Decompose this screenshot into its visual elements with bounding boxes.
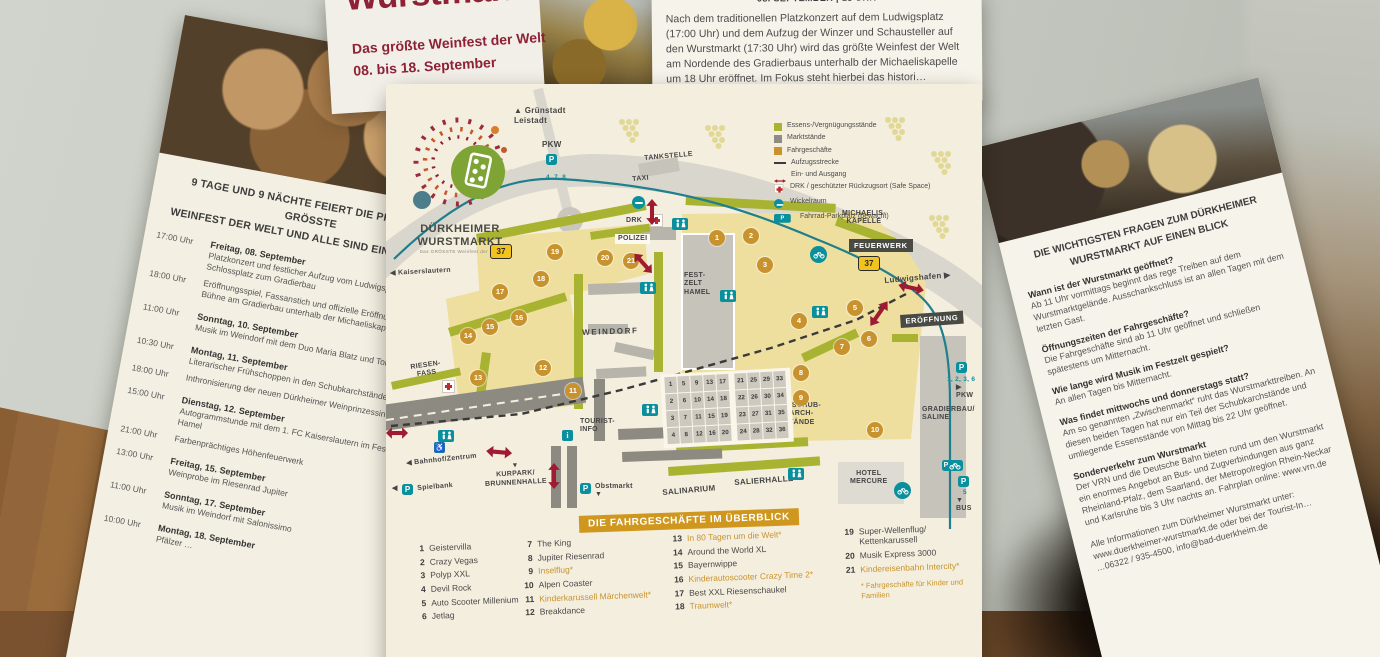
wc-icon — [720, 290, 736, 302]
rides-column: 7The King8Jupiter Riesenrad9Inselflug*10… — [516, 534, 652, 621]
ride-item: 12Breakdance — [519, 603, 652, 618]
ride-name: Around the World XL — [687, 544, 766, 557]
stall-number: 25 — [747, 372, 760, 389]
ride-item: 17Best XXL Riesenschaukel — [668, 583, 814, 599]
bus-route-label: 5 — [963, 489, 967, 497]
schedule-time: 17:00 Uhr — [151, 229, 202, 270]
stall-number: 33 — [773, 371, 786, 388]
ride-item: 1Geistervilla — [408, 540, 517, 554]
drk-label: DRK — [626, 217, 642, 225]
stand-marker-20: 20 — [597, 250, 613, 266]
pkw-ost-routes-label: 1, 2, 3, 6 — [947, 376, 975, 384]
ride-number: 8 — [516, 553, 532, 564]
ride-name: Kinderkarussell Märchenwelt* — [539, 589, 651, 603]
green-legend-icon — [774, 123, 782, 131]
stand-marker-13: 13 — [470, 370, 486, 386]
rides-column: 19Super-Wellenflug/ Kettenkarussell20Mus… — [838, 522, 972, 601]
schedule-time: 21:00 Uhr — [119, 423, 166, 442]
ride-name: Geistervilla — [429, 541, 471, 553]
ride-name: Polyp XXL — [430, 569, 470, 581]
legend-item: Wickelraum — [774, 198, 950, 210]
legend-label: Aufzugsstrecke — [791, 159, 839, 168]
ride-item: 3Polyp XXL — [409, 567, 518, 581]
ride-name: Jupiter Riesenrad — [537, 550, 604, 563]
legend-label: Ein- und Ausgang — [791, 171, 846, 180]
obstmarkt-label: Obstmarkt ▼ — [595, 483, 633, 500]
stall-number: 20 — [719, 425, 732, 442]
ride-number: 20 — [839, 550, 855, 561]
ride-name: Alpen Coaster — [538, 578, 592, 590]
stand-marker-12: 12 — [535, 360, 551, 376]
stand-marker-7: 7 — [834, 339, 850, 355]
ride-name: The King — [537, 537, 571, 548]
stall-number: 13 — [703, 375, 716, 392]
stall-number: 34 — [774, 388, 787, 405]
faq-list: Wann ist der Wurstmarkt geöffnet?Ab 11 U… — [1027, 228, 1339, 529]
ride-name: Musik Express 3000 — [860, 547, 937, 560]
legend-item: Aufzugsstrecke — [774, 159, 950, 168]
stall-number: 29 — [760, 372, 773, 389]
parking-icon: P — [958, 476, 969, 487]
stand-marker-19: 19 — [547, 244, 563, 260]
schedule-time: 13:00 Uhr — [113, 446, 162, 476]
stall-number: 24 — [737, 424, 750, 441]
bicycle-icon — [894, 482, 911, 499]
stall-number: 15 — [705, 409, 718, 426]
stall-number: 2 — [665, 394, 678, 411]
map-panel: DÜRKHEIMER WURSTMARKT Das GRÖSSTE Weinfe… — [386, 84, 982, 657]
ride-item: 18Traumwelt* — [668, 597, 814, 613]
brochure-dates: 08. bis 18. September — [353, 54, 497, 79]
ride-number: 3 — [409, 570, 425, 581]
entrance-arrow — [386, 426, 408, 444]
ride-number: 9 — [517, 566, 533, 577]
stall-number: 28 — [750, 423, 763, 440]
entrance-arrow — [543, 463, 561, 489]
ride-name: Devil Rock — [431, 582, 472, 594]
schedule-time: 15:00 Uhr — [123, 385, 174, 426]
stand-marker-15: 15 — [482, 319, 498, 335]
ride-number: 5 — [410, 598, 426, 609]
pbike-legend-icon: P — [774, 214, 791, 223]
stall-number: 11 — [692, 409, 705, 426]
entrance-arrow — [641, 199, 659, 225]
ride-item: 4Devil Rock — [410, 581, 519, 595]
legend-item: Fahrgeschäfte — [774, 147, 950, 156]
stall-number: 19 — [718, 408, 731, 425]
legend-label: DRK / geschützter Rückzugsort (Safe Spac… — [790, 183, 930, 192]
ride-number: 15 — [667, 561, 683, 572]
ride-number: 14 — [666, 547, 682, 558]
stall-number: 12 — [693, 426, 706, 443]
stall-number: 31 — [762, 406, 775, 423]
schedule-time: 10:30 Uhr — [134, 335, 183, 365]
michaeliskapelle-label: MICHAELIS- KAPELLE — [842, 210, 886, 227]
legend-label: Fahrgeschäfte — [787, 147, 832, 156]
spielbank-arrow-label: ◀ — [392, 485, 398, 493]
kurpark-label: ▼ KURPARK/ BRUNNENHALLE — [484, 461, 547, 489]
schedule-time: 18:00 Uhr — [146, 268, 195, 298]
stand-marker-16: 16 — [511, 310, 527, 326]
stand-marker-1: 1 — [709, 230, 725, 246]
stall-number: 10 — [691, 392, 704, 409]
brochure-subtitle: Das größte Weinfest der Welt — [351, 29, 546, 57]
schubkarch-stall-grid: 1591317212529332610141822263034371115192… — [660, 368, 794, 449]
rides-list: 1Geistervilla2Crazy Vegas3Polyp XXL4Devi… — [400, 522, 977, 657]
ride-number: 21 — [839, 564, 855, 575]
gruenstadt-label: ▲ Grünstadt Leistadt — [514, 106, 566, 125]
opening-date-header: 08. SEPTEMBER | 18 UHR — [666, 0, 968, 4]
schedule-time: 10:00 Uhr — [101, 513, 150, 543]
legend-item: Ein- und Ausgang — [774, 171, 950, 180]
wc-icon — [812, 306, 828, 318]
taxi-label: TAXI — [632, 175, 649, 185]
stand-marker-18: 18 — [533, 271, 549, 287]
tourist-info-label: TOURIST- INFO — [580, 418, 615, 435]
ride-name: Auto Scooter Millenium — [431, 594, 519, 608]
stall-number: 6 — [678, 393, 691, 410]
legend-label: Essens-/Vergnügungsstände — [787, 122, 877, 131]
ride-item: 9Inselflug* — [517, 562, 650, 577]
stall-number: 21 — [734, 373, 747, 390]
ride-name: Kindereisenbahn Intercity* — [860, 560, 960, 574]
legend-item: Essens-/Vergnügungsstände — [774, 122, 950, 131]
ride-name: Crazy Vegas — [430, 555, 479, 567]
wc-icon — [642, 404, 658, 416]
stand-marker-6: 6 — [861, 331, 877, 347]
ride-item: 11Kinderkarussell Märchenwelt* — [518, 589, 651, 604]
ride-item: 7The King — [516, 534, 649, 549]
ride-item: 8Jupiter Riesenrad — [516, 548, 649, 563]
ride-number: 7 — [516, 539, 532, 550]
stall-number: 23 — [736, 407, 749, 424]
stall-number: 7 — [679, 410, 692, 427]
parking-icon: P — [956, 362, 967, 373]
ride-item: 13In 80 Tagen um die Welt* — [666, 528, 812, 544]
ride-name: Super-Wellenflug/ Kettenkarussell — [859, 524, 927, 547]
schedule-time: 18:00 Uhr — [131, 362, 178, 381]
ride-number: 6 — [411, 611, 427, 622]
arrow-legend-icon — [774, 172, 786, 180]
ride-number: 16 — [667, 574, 683, 585]
ride-name: Best XXL Riesenschaukel — [689, 584, 787, 598]
route-37-badge: 37 — [858, 256, 880, 271]
wc-icon — [438, 430, 454, 442]
stall-number: 5 — [677, 376, 690, 393]
feuerwerk-label: FEUERWERK — [849, 239, 913, 252]
pkw-ost-label: ▶ PKW — [956, 384, 973, 401]
route-37-badge: 37 — [490, 244, 512, 259]
stand-marker-14: 14 — [460, 328, 476, 344]
ride-number: 2 — [409, 557, 425, 568]
wurstmarkt-logo-art — [400, 110, 520, 218]
legend-item: Marktstände — [774, 134, 950, 143]
stand-marker-17: 17 — [492, 284, 508, 300]
ride-name: Jetlag — [432, 610, 455, 621]
ride-item: 16Kinderautoscooter Crazy Time 2* — [667, 569, 813, 585]
rides-column: 1Geistervilla2Crazy Vegas3Polyp XXL4Devi… — [408, 540, 519, 626]
stall-number: 36 — [776, 422, 789, 439]
stall-number: 22 — [735, 390, 748, 407]
entrance-arrow — [485, 444, 512, 464]
ride-item: 10Alpen Coaster — [517, 575, 650, 590]
stall-number: 17 — [716, 374, 729, 391]
tourist-info-icon: i — [562, 430, 573, 441]
ride-number: 17 — [668, 588, 684, 599]
ride-number: 12 — [519, 607, 535, 618]
gray-legend-icon — [774, 135, 782, 143]
rides-footnote: * Fahrgeschäfte für Kinder und Familien — [861, 577, 972, 601]
stall-number: 8 — [680, 427, 693, 444]
hotel-mercure-label: HOTEL MERCURE — [850, 470, 888, 487]
stall-number: 1 — [664, 377, 677, 394]
ride-name: Inselflug* — [538, 565, 573, 577]
parking-icon: P — [546, 154, 557, 165]
stand-marker-11: 11 — [565, 383, 581, 399]
stall-number: 18 — [717, 391, 730, 408]
ride-item: 14Around the World XL — [666, 542, 812, 558]
stall-number: 16 — [706, 426, 719, 443]
ride-item: 15Bayernwippe — [667, 556, 813, 572]
ride-name: Breakdance — [540, 605, 586, 617]
wc-icon — [788, 468, 804, 480]
legend-item: DRK / geschützter Rückzugsort (Safe Spac… — [774, 183, 950, 195]
bicycle-icon — [810, 246, 827, 263]
ride-item: 19Super-Wellenflug/ Kettenkarussell — [838, 522, 970, 547]
ride-number: 4 — [410, 584, 426, 595]
festival-map: DÜRKHEIMER WURSTMARKT Das GRÖSSTE Weinfe… — [386, 84, 982, 529]
parking-icon: P — [402, 484, 413, 495]
stand-marker-2: 2 — [743, 228, 759, 244]
weindorf-label: WEINDORF — [582, 326, 639, 338]
brochure-title: Wurstmarkt — [344, 0, 535, 19]
stall-number: 26 — [748, 389, 761, 406]
stall-number: 35 — [775, 405, 788, 422]
ride-name: In 80 Tagen um die Welt* — [687, 529, 782, 543]
bike-parking-icon: P — [942, 460, 963, 471]
stall-number: 9 — [690, 375, 703, 392]
stall-number: 30 — [761, 389, 774, 406]
dash-legend-icon — [774, 162, 786, 164]
stand-marker-9: 9 — [793, 390, 809, 406]
schedule-time: 11:00 Uhr — [140, 301, 189, 331]
stand-marker-3: 3 — [757, 257, 773, 273]
rides-column: 13In 80 Tagen um die Welt*14Around the W… — [666, 528, 815, 616]
stand-marker-10: 10 — [867, 422, 883, 438]
stall-number: 14 — [704, 392, 717, 409]
ride-name: Kinderautoscooter Crazy Time 2* — [688, 569, 813, 584]
stall-number: 3 — [666, 411, 679, 428]
ride-number: 18 — [668, 602, 684, 613]
ride-item: 2Crazy Vegas — [409, 553, 518, 567]
stand-marker-8: 8 — [793, 365, 809, 381]
ride-item: 21Kindereisenbahn Intercity* — [839, 560, 970, 575]
ride-name: Traumwelt* — [689, 600, 732, 612]
ride-number: 1 — [408, 543, 424, 554]
ride-number: 11 — [518, 594, 534, 605]
stall-number: 27 — [749, 406, 762, 423]
ride-name: Bayernwippe — [688, 558, 737, 570]
parking-icon: P — [580, 483, 591, 494]
stall-number: 32 — [763, 423, 776, 440]
ride-item: 5Auto Scooter Millenium — [410, 594, 519, 608]
wurstmarkt-logo: DÜRKHEIMER WURSTMARKT Das GRÖSSTE Weinfe… — [392, 110, 528, 254]
logo-title-line1: DÜRKHEIMER — [392, 223, 528, 236]
bus-label: ▼ BUS — [956, 497, 972, 514]
wickel-legend-icon — [774, 199, 783, 208]
ochre-legend-icon — [774, 147, 782, 155]
brochure-photo-scene: 9 TAGE UND 9 NÄCHTE FEIERT DIE PFALZ DAS… — [0, 0, 1380, 657]
wc-icon — [640, 282, 656, 294]
schedule-time: 11:00 Uhr — [107, 480, 156, 510]
ride-item: 6Jetlag — [411, 608, 520, 622]
stand-marker-5: 5 — [847, 300, 863, 316]
ride-number: 10 — [517, 580, 533, 591]
festzelt-hamel-label: FEST- ZELT HAMEL — [684, 272, 710, 297]
cross-legend-icon — [774, 184, 783, 193]
stall-number: 4 — [667, 428, 680, 445]
legend-label: Wickelraum — [790, 198, 827, 207]
legend-label: Marktstände — [787, 134, 826, 143]
pkw-nord-routes-label: 4, 7, 8 — [546, 174, 566, 182]
ride-number: 13 — [666, 533, 682, 544]
ride-number: 19 — [838, 527, 855, 548]
polizei-label: POLIZEI — [615, 234, 650, 244]
pkw-nord-label: PKW — [542, 140, 562, 150]
wc-icon — [672, 218, 688, 230]
stand-marker-4: 4 — [791, 313, 807, 329]
ride-item: 20Musik Express 3000 — [839, 546, 970, 561]
gradierbau-saline-label: GRADIERBAU/ SALINE — [922, 406, 975, 423]
wheelchair-icon: ♿ — [434, 442, 445, 453]
drk-safespace-icon — [442, 380, 455, 393]
opening-text: Nach dem traditionellen Platzkonzert auf… — [666, 10, 969, 88]
